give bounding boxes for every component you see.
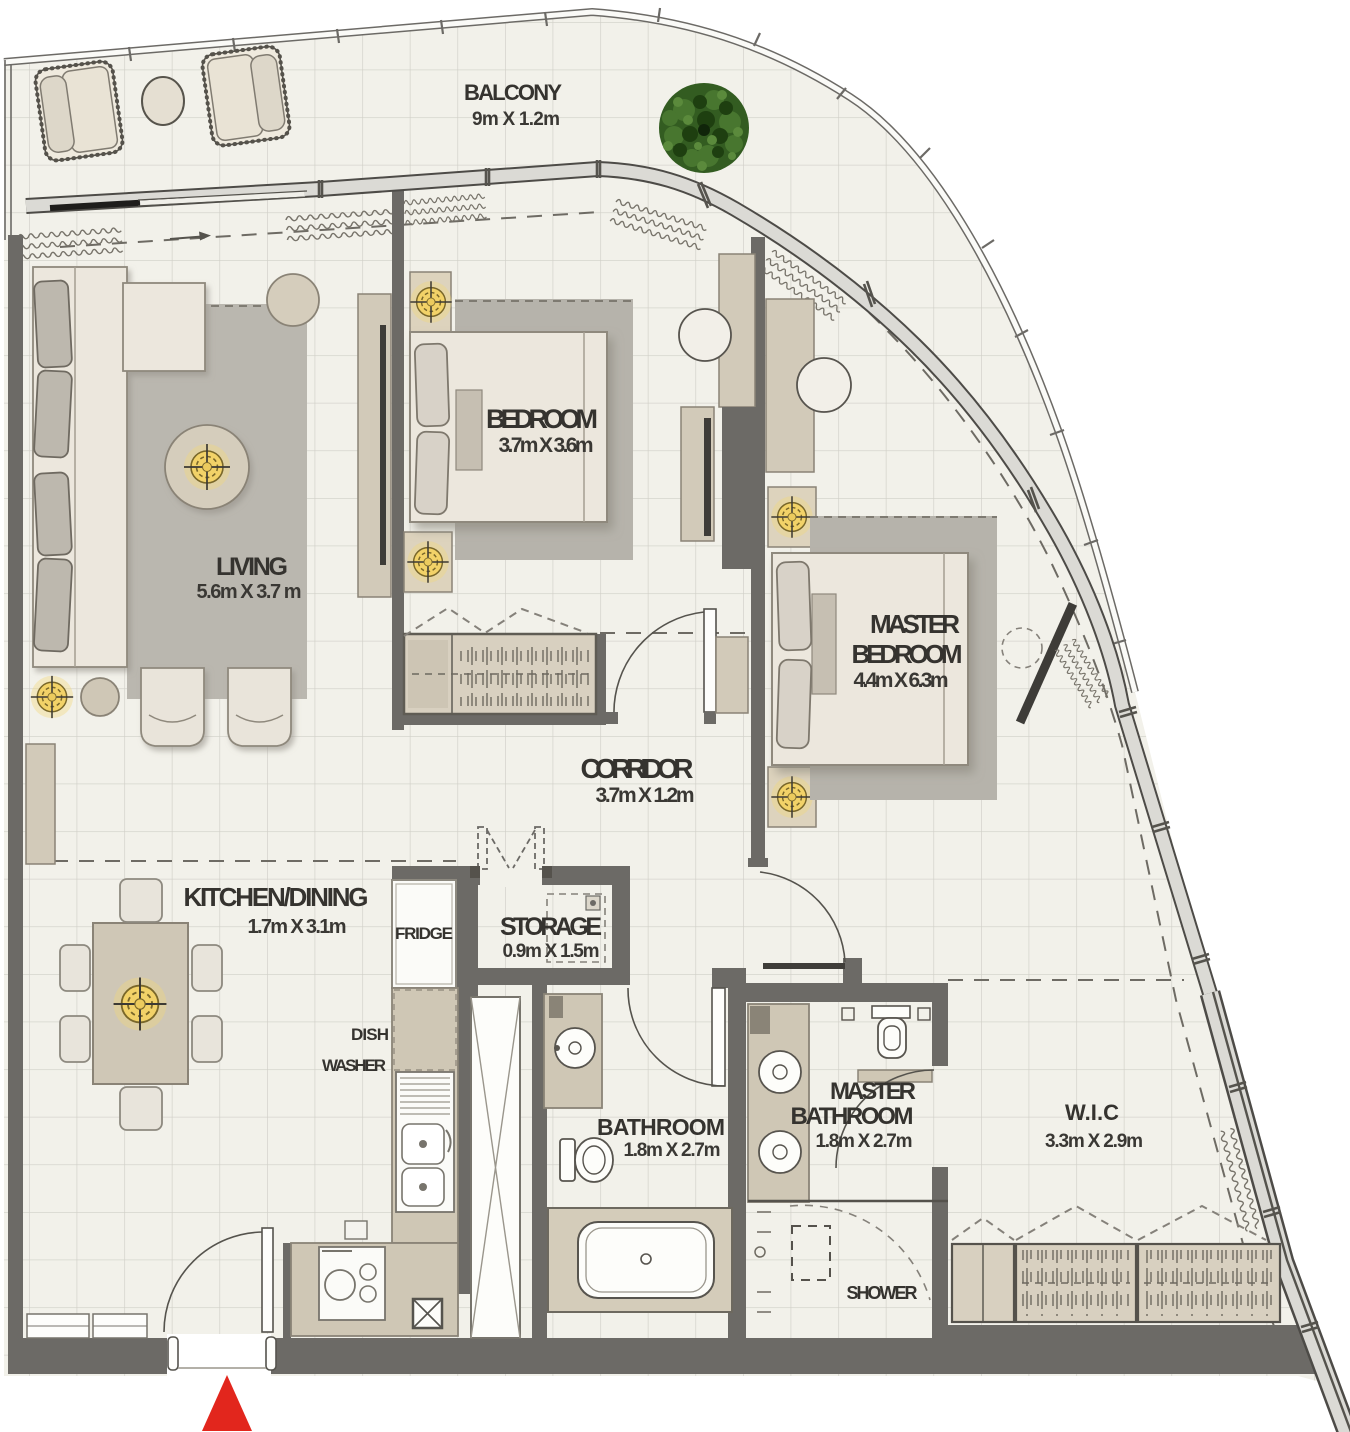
svg-text:MASTER: MASTER (830, 1078, 916, 1105)
svg-text:KITCHEN/DINING: KITCHEN/DINING (184, 882, 369, 912)
svg-text:DISH: DISH (351, 1025, 389, 1044)
svg-text:3.3m X 2.9m: 3.3m X 2.9m (1045, 1131, 1143, 1152)
svg-text:4.4m X 6.3m: 4.4m X 6.3m (854, 669, 949, 692)
svg-text:5.6m X 3.7 m: 5.6m X 3.7 m (197, 581, 302, 603)
svg-text:WASHER: WASHER (322, 1056, 386, 1075)
svg-text:BATHROOM: BATHROOM (791, 1103, 914, 1130)
svg-text:BEDROOM: BEDROOM (486, 404, 598, 434)
svg-text:0.9m X 1.5m: 0.9m X 1.5m (503, 941, 600, 962)
svg-text:9m X 1.2m: 9m X 1.2m (472, 109, 560, 130)
svg-text:BEDROOM: BEDROOM (852, 639, 963, 669)
svg-text:STORAGE: STORAGE (500, 913, 602, 941)
svg-text:1.8m X 2.7m: 1.8m X 2.7m (624, 1140, 721, 1161)
svg-text:1.8m X 2.7m: 1.8m X 2.7m (816, 1131, 913, 1152)
svg-text:3.7m X 1.2m: 3.7m X 1.2m (596, 784, 695, 807)
svg-text:3.7m X 3.6m: 3.7m X 3.6m (499, 434, 594, 457)
svg-text:W.I.C: W.I.C (1065, 1100, 1119, 1125)
svg-text:LIVING: LIVING (216, 553, 288, 581)
svg-text:CORRIDOR: CORRIDOR (581, 753, 694, 784)
svg-text:BALCONY: BALCONY (464, 80, 562, 105)
svg-text:FRIDGE: FRIDGE (395, 924, 453, 943)
svg-text:BATHROOM: BATHROOM (597, 1114, 725, 1140)
svg-text:MASTER: MASTER (870, 609, 960, 639)
svg-text:SHOWER: SHOWER (847, 1283, 918, 1303)
svg-text:1.7m X 3.1m: 1.7m X 3.1m (248, 916, 347, 938)
